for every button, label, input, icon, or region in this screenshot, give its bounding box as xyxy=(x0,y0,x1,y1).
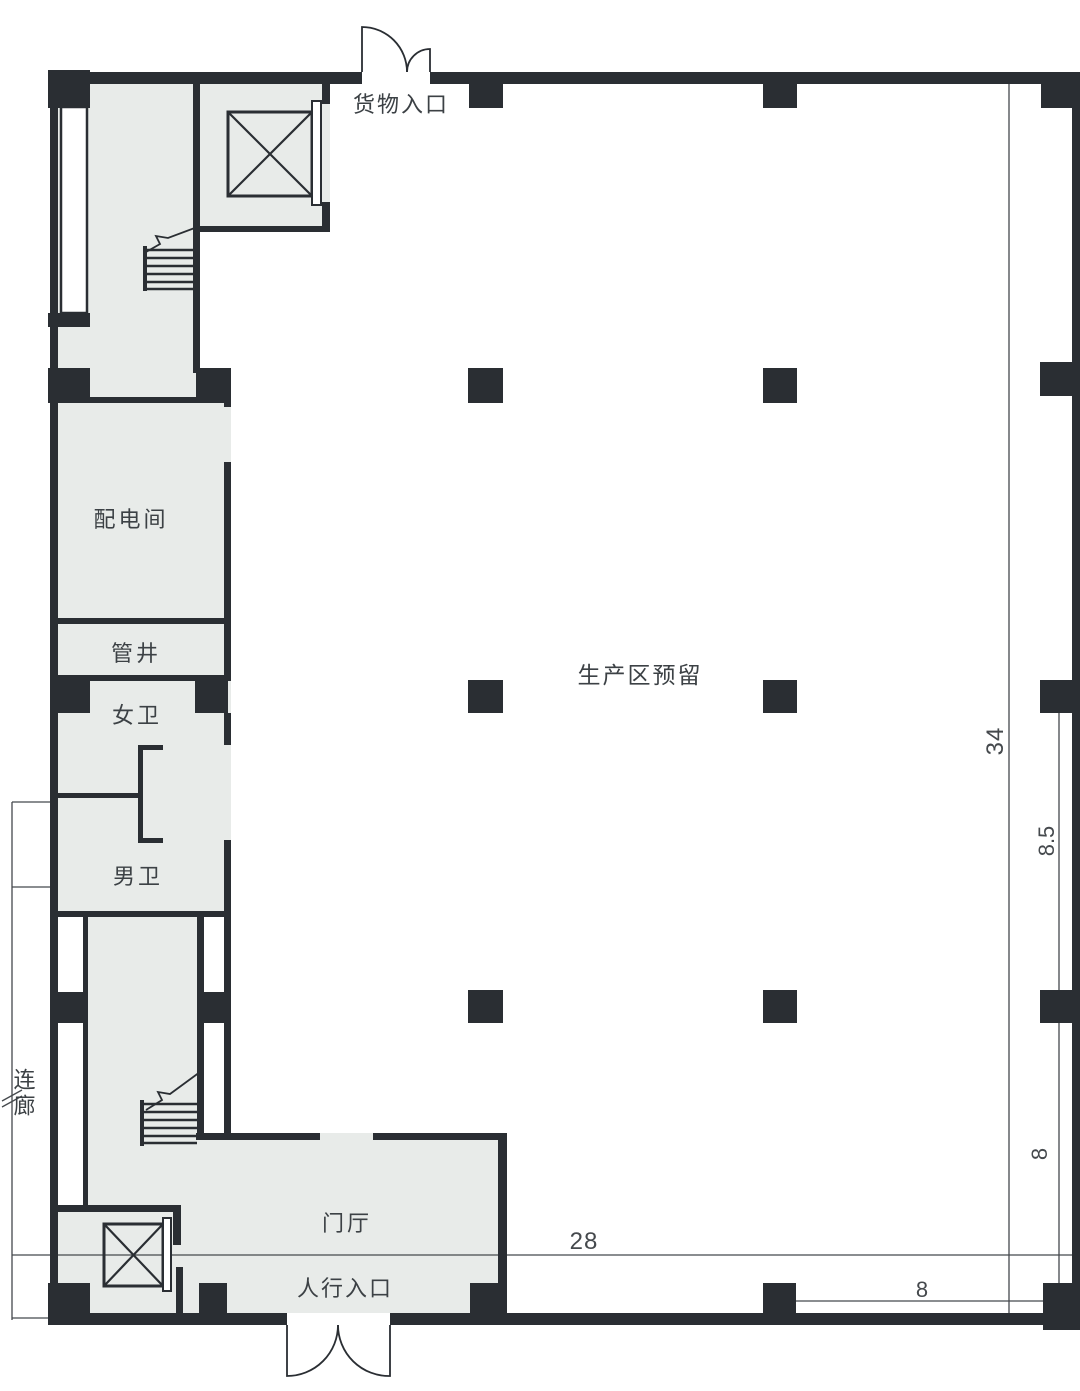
foyer-east-wall xyxy=(498,1133,507,1316)
label-pedestrian-entrance: 人行入口 xyxy=(297,1276,393,1301)
column xyxy=(1040,990,1080,1023)
label-mens-toilet: 男卫 xyxy=(113,864,163,889)
elevator-door-panel xyxy=(312,101,321,205)
door-leaf-large xyxy=(362,27,407,72)
corridor-west-cavity xyxy=(58,917,83,1205)
toilet-divider-wall xyxy=(56,793,138,798)
column xyxy=(763,368,797,403)
label-foyer: 门厅 xyxy=(322,1211,372,1236)
toilet-privacy-screen xyxy=(138,838,163,843)
strip-east-wall xyxy=(224,713,231,745)
column xyxy=(50,992,88,1023)
room-fill-areas xyxy=(56,84,507,1313)
corridor-west-wall xyxy=(83,917,88,1207)
column xyxy=(468,680,503,713)
lift-shaft-east-wall xyxy=(322,84,330,104)
label-cargo-entrance: 货物入口 xyxy=(353,92,449,117)
column xyxy=(1041,72,1080,108)
floor-plan-page: 货物入口 配电间 管井 女卫 男卫 连廊 门厅 人行入口 生产区预留 34 8.… xyxy=(0,0,1080,1391)
toilet-privacy-screen xyxy=(138,745,163,750)
stair-rail xyxy=(143,246,147,291)
top-wall-east xyxy=(430,72,1080,84)
column xyxy=(56,680,90,713)
lift-lobby-stub-wall xyxy=(176,1267,183,1313)
foyer-north-wall xyxy=(373,1133,503,1140)
dimension-labels: 34 8.5 8 28 8 xyxy=(570,727,1059,1302)
power-room-south-wall xyxy=(58,618,231,624)
column xyxy=(1040,362,1080,396)
dim-value-28: 28 xyxy=(570,1228,599,1255)
door-leaf-left xyxy=(287,1325,338,1376)
stair-rail xyxy=(140,1100,144,1146)
column xyxy=(48,1283,90,1325)
dim-value-34: 34 xyxy=(982,727,1009,756)
power-room-north-wall xyxy=(58,397,231,403)
lift-lobby-north-wall xyxy=(56,1205,181,1212)
column xyxy=(1040,680,1080,713)
lift-shaft-east-wall xyxy=(322,202,330,232)
top-wall-west xyxy=(48,72,362,84)
dim-value-8-right: 8 xyxy=(1027,1148,1052,1160)
mens-toilet-south-wall xyxy=(56,911,231,917)
floor-plan-drawing: 货物入口 配电间 管井 女卫 男卫 连廊 门厅 人行入口 生产区预留 34 8.… xyxy=(0,0,1080,1391)
label-production-area: 生产区预留 xyxy=(578,662,703,688)
dim-value-8-bottom: 8 xyxy=(916,1277,928,1302)
foyer-north-wall xyxy=(196,1133,320,1140)
column xyxy=(195,680,228,713)
corridor-outer-east-wall xyxy=(224,917,231,1133)
toilet-privacy-screen xyxy=(138,745,143,843)
corridor-east-cavity xyxy=(204,917,224,1133)
column xyxy=(763,1283,796,1315)
dim-value-8-5: 8.5 xyxy=(1034,826,1059,857)
column xyxy=(199,1283,227,1315)
stair-hall-east-wall xyxy=(193,84,200,373)
lift-lobby-stub-wall xyxy=(173,1205,181,1245)
column xyxy=(1043,1283,1080,1330)
pedestrian-door-symbol xyxy=(287,1325,390,1376)
column xyxy=(468,368,503,403)
strip-east-wall xyxy=(224,462,231,680)
column xyxy=(48,70,90,108)
column xyxy=(469,72,503,108)
lift-shaft-south-wall xyxy=(200,226,330,232)
label-pipe-shaft: 管井 xyxy=(111,641,161,666)
elevator-door-panel xyxy=(163,1218,171,1291)
column xyxy=(763,680,797,713)
strip-east-wall xyxy=(224,840,231,917)
column xyxy=(763,72,797,108)
west-wall-niche xyxy=(61,107,87,313)
label-power-distribution-room: 配电间 xyxy=(93,507,168,532)
west-wall-segment xyxy=(48,313,90,327)
door-leaf-small xyxy=(407,49,430,72)
pipe-shaft-south-wall xyxy=(58,675,231,681)
label-connecting-corridor: 连廊 xyxy=(11,1068,36,1120)
cargo-door-symbol xyxy=(362,27,430,72)
freight-lift-shaft-fill xyxy=(196,84,330,232)
corridor-east-wall xyxy=(197,917,204,1140)
strip-east-wall xyxy=(224,397,231,407)
column xyxy=(763,990,797,1023)
column xyxy=(468,990,503,1023)
door-leaf-right xyxy=(338,1325,390,1376)
label-womens-toilet: 女卫 xyxy=(112,703,162,728)
